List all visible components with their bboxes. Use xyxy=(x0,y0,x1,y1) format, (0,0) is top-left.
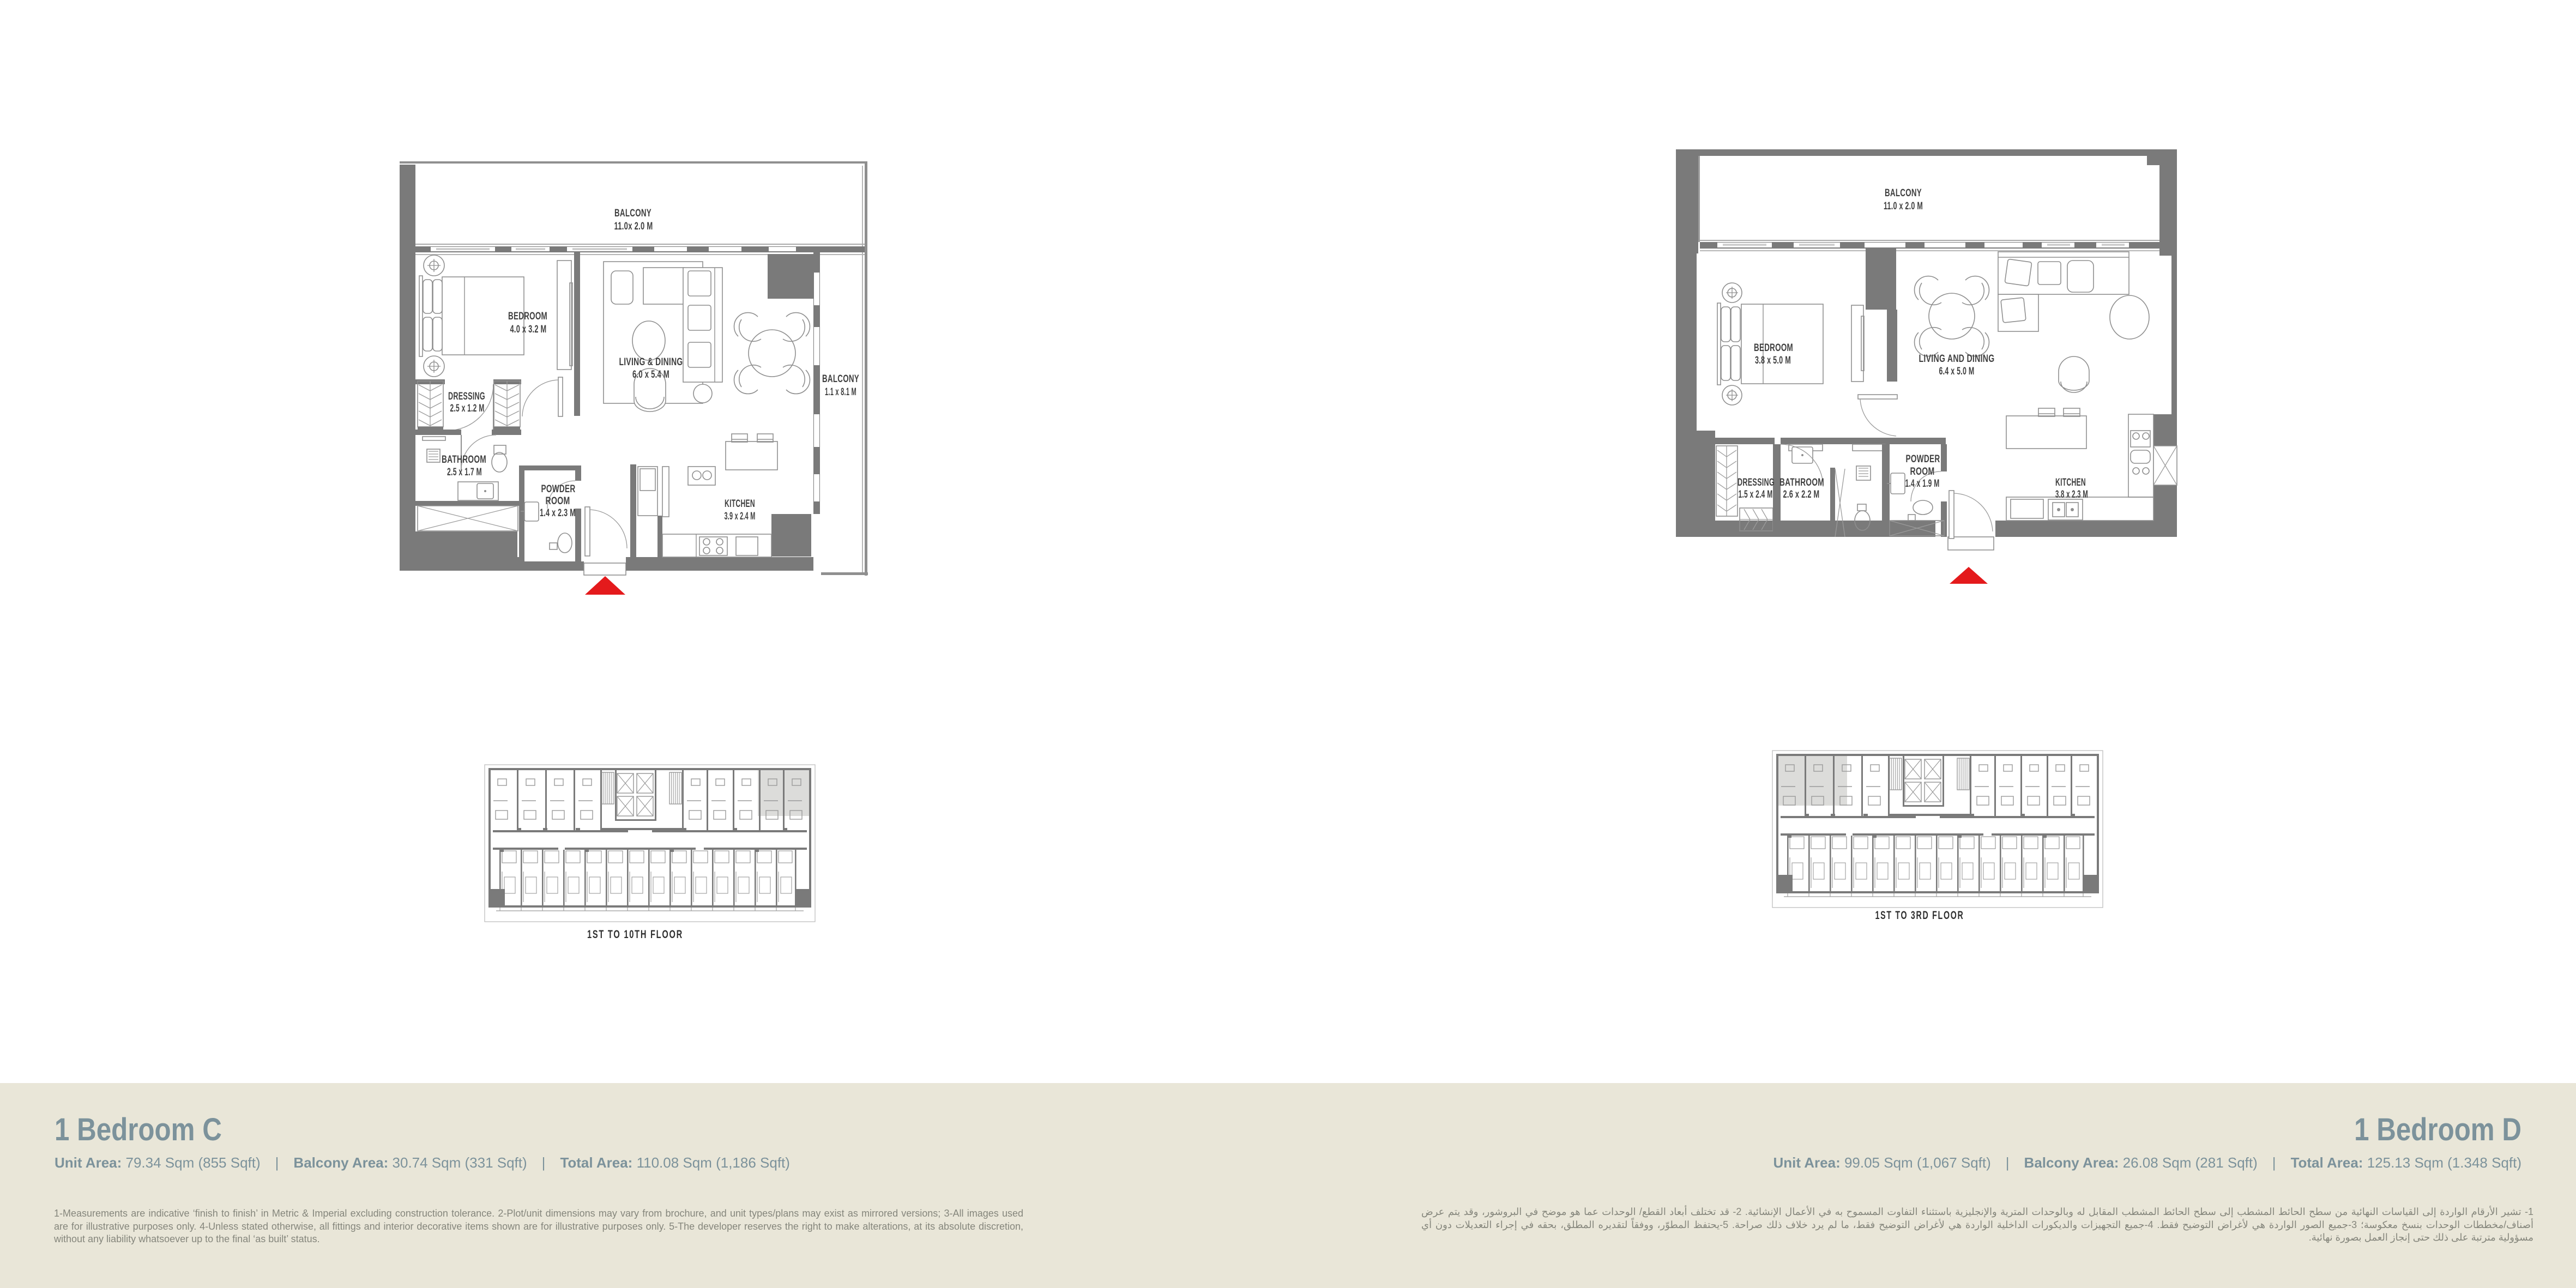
svg-text:BEDROOM: BEDROOM xyxy=(1754,342,1793,354)
svg-text:LIVING & DINING: LIVING & DINING xyxy=(619,356,683,368)
svg-text:BATHROOM: BATHROOM xyxy=(1779,477,1824,488)
svg-text:BALCONY: BALCONY xyxy=(614,208,651,219)
svg-text:3.8 x 5.0 M: 3.8 x 5.0 M xyxy=(1755,355,1791,366)
svg-text:DRESSING: DRESSING xyxy=(1738,477,1775,488)
svg-text:6.4 x 5.0 M: 6.4 x 5.0 M xyxy=(1939,366,1975,377)
svg-text:1.1 x 8.1 M: 1.1 x 8.1 M xyxy=(825,386,856,398)
svg-text:2.5 x 1.2 M: 2.5 x 1.2 M xyxy=(450,403,485,414)
svg-text:1ST TO 3RD FLOOR: 1ST TO 3RD FLOOR xyxy=(1875,909,1964,922)
svg-text:1.5 x 2.4 M: 1.5 x 2.4 M xyxy=(1739,489,1773,500)
svg-text:ROOM: ROOM xyxy=(546,495,570,507)
svg-text:1ST TO 10TH FLOOR: 1ST TO 10TH FLOOR xyxy=(587,928,683,941)
svg-text:BALCONY: BALCONY xyxy=(822,373,859,385)
svg-text:4.0 x 3.2 M: 4.0 x 3.2 M xyxy=(510,324,547,335)
svg-text:LIVING AND DINING: LIVING AND DINING xyxy=(1919,353,1995,365)
svg-text:ROOM: ROOM xyxy=(1910,466,1935,477)
svg-text:KITCHEN: KITCHEN xyxy=(2055,477,2086,488)
svg-text:11.0 x 2.0 M: 11.0 x 2.0 M xyxy=(1884,201,1923,212)
svg-text:DRESSING: DRESSING xyxy=(448,391,485,402)
svg-text:BEDROOM: BEDROOM xyxy=(508,311,547,322)
svg-text:BALCONY: BALCONY xyxy=(1885,188,1922,199)
svg-text:BATHROOM: BATHROOM xyxy=(442,454,486,465)
svg-text:POWDER: POWDER xyxy=(1906,453,1940,465)
svg-text:3.8 x 2.3 M: 3.8 x 2.3 M xyxy=(2055,489,2088,500)
svg-text:1.4 x 2.3 M: 1.4 x 2.3 M xyxy=(540,507,576,519)
svg-text:6.0 x 5.4 M: 6.0 x 5.4 M xyxy=(632,369,669,380)
svg-text:2.6 x 2.2 M: 2.6 x 2.2 M xyxy=(1783,489,1820,500)
svg-text:2.5 x 1.7 M: 2.5 x 1.7 M xyxy=(447,467,482,478)
svg-text:POWDER: POWDER xyxy=(541,483,576,495)
svg-text:11.0x 2.0 M: 11.0x 2.0 M xyxy=(614,221,653,232)
svg-text:KITCHEN: KITCHEN xyxy=(725,498,755,510)
svg-text:3.9 x 2.4 M: 3.9 x 2.4 M xyxy=(725,511,756,522)
svg-text:1.4 x 1.9 M: 1.4 x 1.9 M xyxy=(1905,478,1940,489)
